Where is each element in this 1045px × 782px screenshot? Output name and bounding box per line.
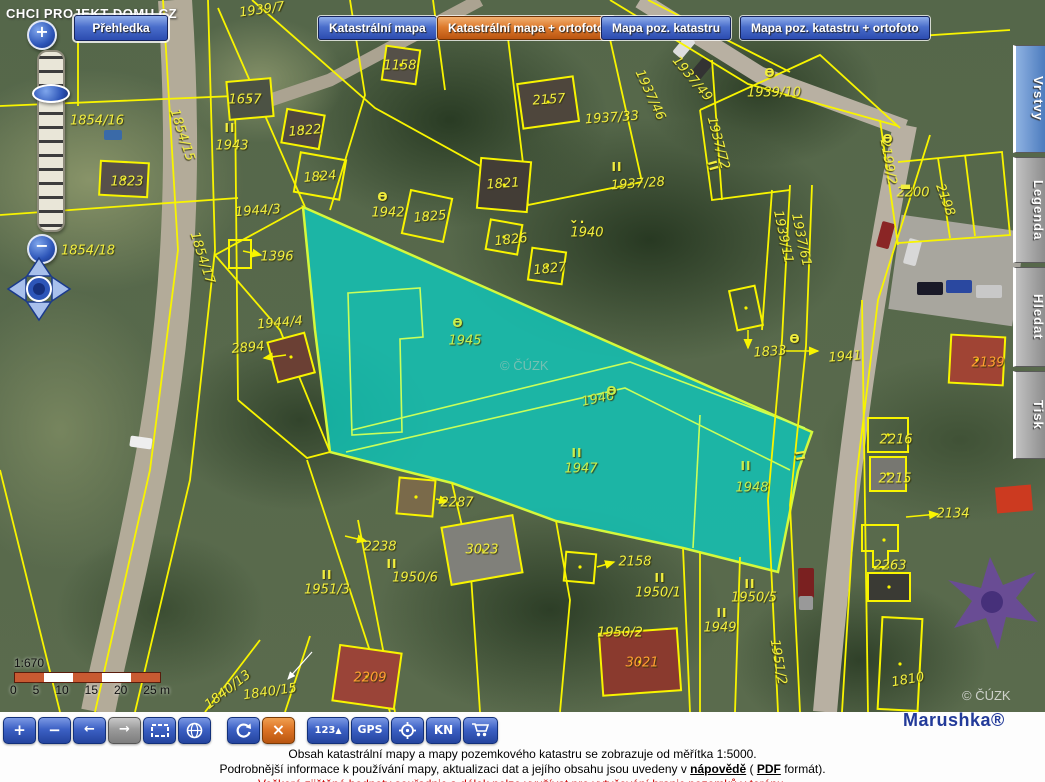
rectangle-select-icon: [152, 725, 168, 736]
star-tent: [948, 557, 1038, 650]
map-type-land-registry-ortho-button[interactable]: Mapa poz. katastru + ortofoto: [740, 16, 930, 40]
map-canvas: [0, 0, 1045, 712]
cuzk-watermark-center: © ČÚZK: [500, 358, 549, 373]
overview-button[interactable]: Přehledka: [74, 15, 168, 41]
map-type-land-registry-button[interactable]: Mapa poz. katastru: [601, 16, 731, 40]
marushka-logo: Marushka®: [903, 710, 1005, 731]
selected-parcels-polygon[interactable]: [303, 207, 812, 572]
target-icon: [399, 722, 416, 739]
map-viewport[interactable]: 1939/71937/321158165721571937/461937/491…: [0, 0, 1045, 712]
footer-line2: Podrobnější informace k používání mapy, …: [0, 762, 1045, 776]
toolbar-measure-button[interactable]: 123▲: [307, 717, 349, 744]
scale-ratio: 1:670: [14, 656, 170, 670]
toolbar-extent-button[interactable]: [178, 717, 211, 744]
scale-indicator: 1:670 05 1015 2025 m: [14, 656, 170, 697]
map-type-cadastral-ortho-button[interactable]: Katastrální mapa + ortofoto: [437, 16, 615, 40]
scale-bar: [14, 672, 161, 683]
toolbar-refresh-button[interactable]: [227, 717, 260, 744]
globe-icon: [186, 722, 203, 739]
tab-print[interactable]: Tisk: [1013, 371, 1045, 459]
zoom-slider-handle[interactable]: [32, 84, 70, 103]
toolbar-kn-button[interactable]: KN: [426, 717, 461, 744]
toolbar-gps-button[interactable]: GPS: [351, 717, 389, 744]
pan-compass[interactable]: [6, 256, 72, 322]
tab-search[interactable]: Hledat: [1013, 267, 1045, 367]
help-link[interactable]: nápovědě: [690, 762, 746, 776]
tab-legend[interactable]: Legenda: [1013, 157, 1045, 263]
marushka-map-window: 1939/71937/321158165721571937/461937/491…: [0, 0, 1045, 782]
measure-digits: 123: [314, 725, 335, 736]
toolbar-back-button[interactable]: ←: [73, 717, 106, 744]
zoom-in-button[interactable]: +: [27, 20, 57, 50]
refresh-icon: [235, 722, 252, 739]
toolbar-cancel-button[interactable]: ×: [262, 717, 295, 744]
toolbar-zoom-in-button[interactable]: +: [3, 717, 36, 744]
shopping-cart-icon: [471, 722, 490, 738]
measure-arrow-icon: ▲: [335, 726, 341, 735]
footer-warning: Veškeré zjištěné hodnoty souřadnic a dél…: [0, 777, 1045, 782]
map-type-cadastral-button[interactable]: Katastrální mapa: [318, 16, 437, 40]
footer-info: Obsah katastrální mapy a mapy pozemkovéh…: [0, 746, 1045, 782]
toolbar-zoom-rectangle-button[interactable]: [143, 717, 176, 744]
toolbar-locate-button[interactable]: [391, 717, 424, 744]
footer-line1: Obsah katastrální mapy a mapy pozemkovéh…: [0, 747, 1045, 761]
zoom-slider-track[interactable]: [37, 50, 65, 232]
cuzk-watermark-corner: © ČÚZK: [962, 688, 1011, 703]
toolbar-zoom-out-button[interactable]: −: [38, 717, 71, 744]
pdf-link[interactable]: PDF: [757, 762, 781, 776]
toolbar-forward-button[interactable]: →: [108, 717, 141, 744]
toolbar-cart-button[interactable]: [463, 717, 498, 744]
tab-layers[interactable]: Vrstvy: [1013, 45, 1045, 153]
